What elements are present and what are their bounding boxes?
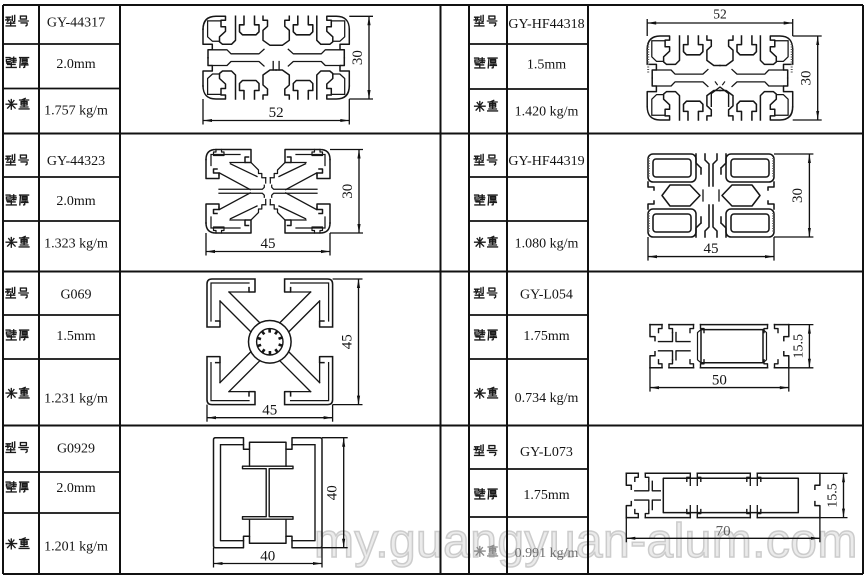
svg-text:40: 40: [260, 548, 275, 564]
svg-text:45: 45: [262, 403, 277, 419]
svg-text:GY-44317: GY-44317: [47, 16, 105, 31]
svg-text:1.75mm: 1.75mm: [523, 329, 569, 344]
svg-text:1.080 kg/m: 1.080 kg/m: [515, 237, 579, 252]
svg-text:2.0mm: 2.0mm: [56, 481, 95, 496]
svg-text:15.5: 15.5: [791, 334, 806, 359]
svg-text:1.420 kg/m: 1.420 kg/m: [515, 105, 579, 120]
svg-text:GY-L073: GY-L073: [520, 445, 573, 460]
svg-text:0.734 kg/m: 0.734 kg/m: [515, 391, 579, 406]
svg-text:52: 52: [713, 7, 727, 22]
svg-text:G069: G069: [60, 288, 91, 303]
svg-text:2.0mm: 2.0mm: [56, 57, 95, 72]
svg-text:1.323 kg/m: 1.323 kg/m: [44, 237, 108, 252]
svg-text:30: 30: [790, 188, 806, 203]
svg-text:45: 45: [261, 236, 276, 252]
svg-text:GY-L054: GY-L054: [520, 288, 573, 303]
svg-text:30: 30: [350, 50, 366, 65]
svg-text:1.757 kg/m: 1.757 kg/m: [44, 104, 108, 119]
svg-text:2.0mm: 2.0mm: [56, 194, 95, 209]
svg-text:30: 30: [340, 184, 356, 199]
svg-text:15.5: 15.5: [825, 483, 840, 508]
svg-text:GY-HF44318: GY-HF44318: [508, 17, 584, 32]
svg-text:52: 52: [269, 105, 284, 121]
svg-text:1.201 kg/m: 1.201 kg/m: [44, 540, 108, 555]
svg-text:G0929: G0929: [57, 442, 95, 457]
svg-text:40: 40: [325, 485, 341, 500]
svg-text:1.5mm: 1.5mm: [527, 58, 566, 73]
svg-text:70: 70: [716, 523, 731, 539]
svg-text:1.75mm: 1.75mm: [523, 488, 569, 503]
svg-text:30: 30: [799, 71, 815, 86]
svg-text:1.5mm: 1.5mm: [56, 329, 95, 344]
svg-text:0.991 kg/m: 0.991 kg/m: [515, 546, 579, 561]
svg-text:50: 50: [712, 373, 727, 389]
svg-text:45: 45: [339, 334, 355, 349]
svg-text:GY-HF44319: GY-HF44319: [508, 154, 584, 169]
svg-text:45: 45: [704, 241, 719, 257]
svg-text:1.231 kg/m: 1.231 kg/m: [44, 392, 108, 407]
svg-text:GY-44323: GY-44323: [47, 154, 105, 169]
